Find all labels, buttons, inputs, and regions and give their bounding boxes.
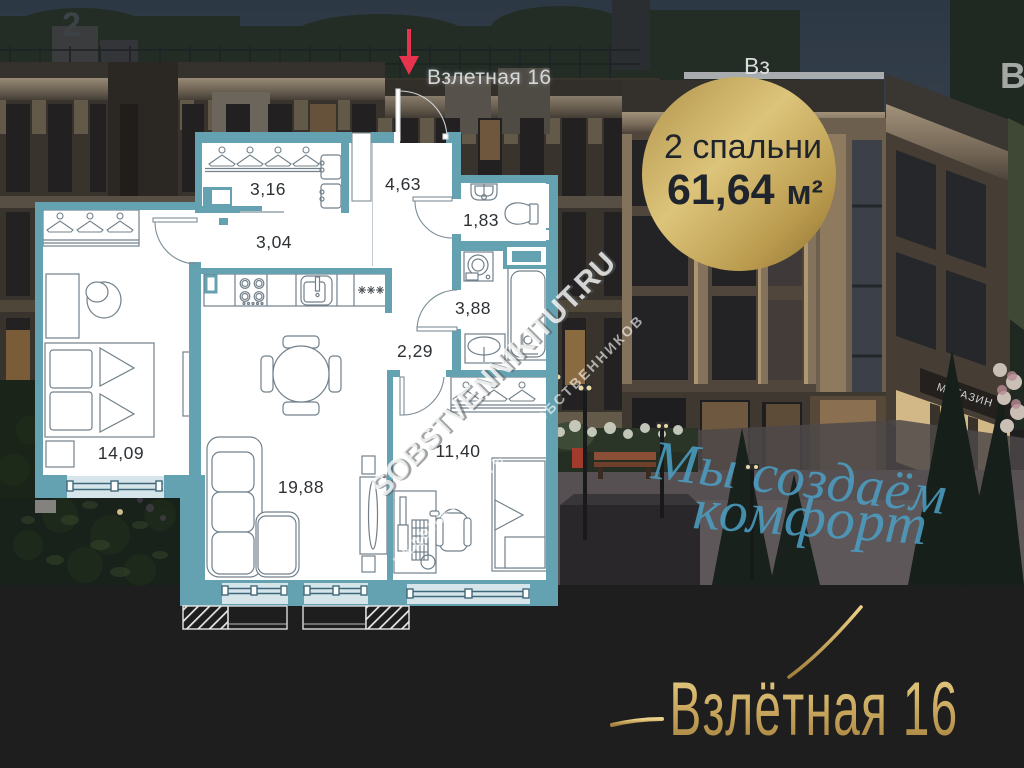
svg-text:14,09: 14,09 (98, 443, 144, 463)
svg-text:2,29: 2,29 (397, 341, 433, 361)
svg-text:1,83: 1,83 (463, 210, 499, 230)
svg-text:2: 2 (62, 6, 81, 44)
svg-text:4,63: 4,63 (385, 174, 421, 194)
svg-text:В: В (1000, 55, 1024, 96)
svg-text:19,88: 19,88 (278, 477, 324, 497)
svg-text:3,16: 3,16 (250, 179, 286, 199)
svg-text:2 спальни: 2 спальни (664, 128, 822, 166)
svg-text:3,88: 3,88 (455, 298, 491, 318)
svg-text:Вз: Вз (744, 53, 770, 79)
svg-text:Взлётная 16: Взлётная 16 (669, 668, 958, 752)
svg-text:Взлетная 16: Взлетная 16 (427, 66, 552, 89)
svg-text:3,04: 3,04 (256, 232, 292, 252)
svg-text:61,64 м²: 61,64 м² (667, 166, 823, 214)
